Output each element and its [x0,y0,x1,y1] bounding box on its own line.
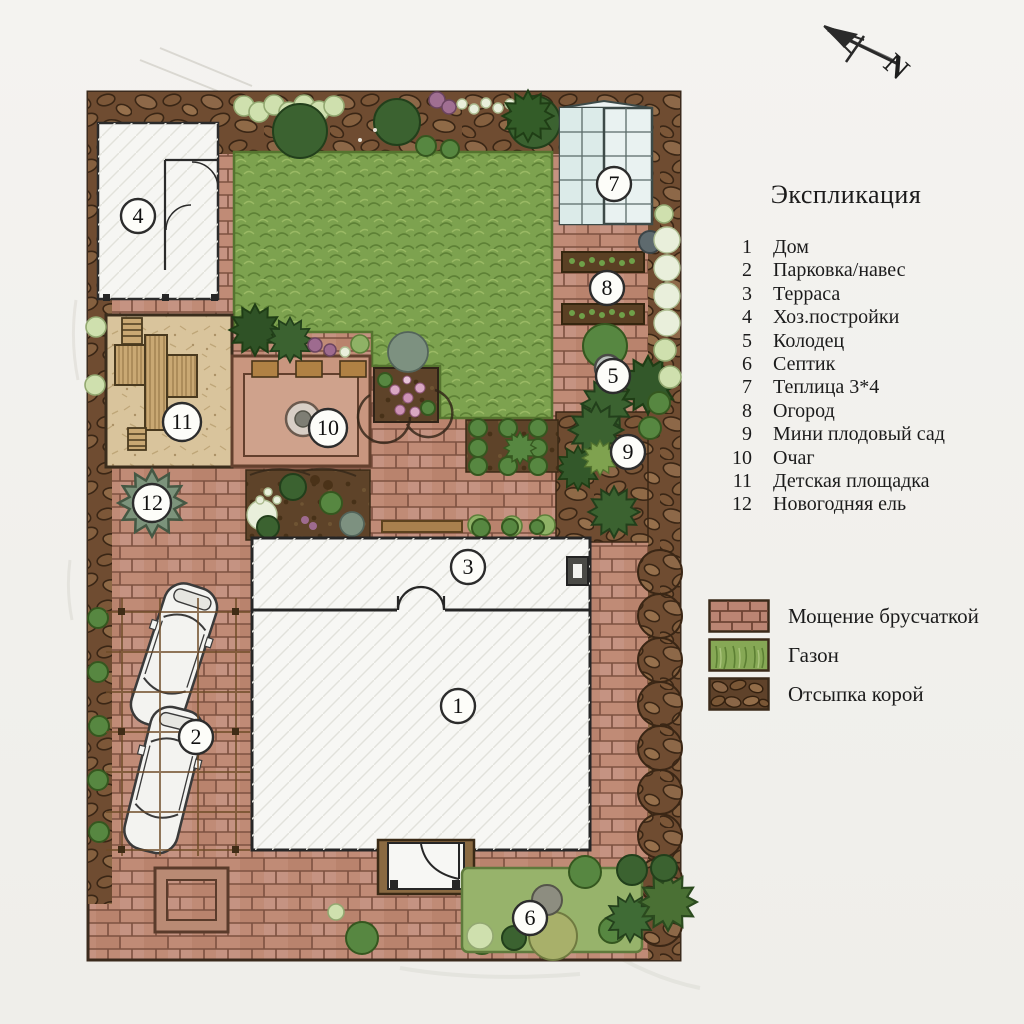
house [252,538,590,850]
legend-item-number: 8 [726,400,752,423]
legend-item-label: Огород [773,400,835,423]
svg-text:10: 10 [317,415,339,440]
legend-item-number: 11 [726,470,752,493]
marker-4-outbuilding: 4 [121,199,155,233]
legend-item-label: Терраса [773,283,840,306]
marker-6-septic: 6 [513,901,547,935]
legend-item: 12Новогодняя ель [726,493,1002,516]
svg-text:6: 6 [525,905,536,930]
legend-item-number: 2 [726,259,752,282]
material-label: Мощение брусчаткой [788,604,979,629]
legend-item: 2Парковка/навес [726,259,1002,282]
marker-11-playground: 11 [163,403,201,441]
playground [106,315,232,467]
legend-title: Экспликация [726,180,966,210]
lawn-swatch [708,638,770,672]
legend-item-number: 7 [726,376,752,399]
garden-bench [382,521,462,532]
marker-5-well: 5 [596,359,630,393]
legend-item-label: Колодец [773,330,844,353]
legend-item-label: Парковка/навес [773,259,905,282]
greenhouse [560,101,652,224]
brick-paving-swatch [708,599,770,633]
legend-item-label: Дом [773,236,809,259]
legend-item-label: Новогодняя ель [773,493,906,516]
north-arrow: N [824,26,916,86]
legend-item-label: Септик [773,353,835,376]
legend-item: 6Септик [726,353,1002,376]
material-item-bark: Отсыпка корой [708,677,979,711]
legend-item: 11Детская площадка [726,470,1002,493]
north-label: N [877,47,915,86]
bench [252,361,278,377]
svg-text:12: 12 [141,490,163,515]
legend-item-label: Мини плодовый сад [773,423,945,446]
legend-item-number: 10 [726,447,752,470]
legend-item-number: 1 [726,236,752,259]
marker-9-orchard: 9 [611,435,645,469]
svg-text:11: 11 [171,409,192,434]
paving-inset-square [155,868,228,932]
legend-item: 7Теплица 3*4 [726,376,1002,399]
bench [340,361,366,377]
tree-grey-green [388,332,428,372]
svg-text:5: 5 [608,363,619,388]
landscape-plan-page: 1 2 3 4 5 6 7 8 9 10 11 12 N Экспликация… [0,0,1024,1024]
svg-text:4: 4 [133,203,144,228]
legend-item-number: 3 [726,283,752,306]
marker-8-vegetable-garden: 8 [590,271,624,305]
legend-list: 1Дом 2Парковка/навес 3Терраса 4Хоз.постр… [726,236,1002,517]
material-item-lawn: Газон [708,638,979,672]
marker-10-fire-pit: 10 [309,409,347,447]
marker-7-greenhouse: 7 [597,167,631,201]
play-platform [167,355,197,397]
marker-2-parking: 2 [179,720,213,754]
svg-text:9: 9 [623,439,634,464]
legend-item: 4Хоз.постройки [726,306,1002,329]
legend-item: 3Терраса [726,283,1002,306]
marker-12-spruce: 12 [133,484,171,522]
svg-text:2: 2 [191,724,202,749]
svg-text:3: 3 [463,554,474,579]
material-label: Отсыпка корой [788,682,924,707]
legend-item: 10Очаг [726,447,1002,470]
outbuilding [98,123,218,301]
material-item-paving: Мощение брусчаткой [708,599,979,633]
materials-legend: Мощение брусчаткой Газон Отсыпка корой [708,599,979,716]
svg-text:8: 8 [602,275,613,300]
bark-mulch-swatch [708,677,770,711]
legend-item: 9Мини плодовый сад [726,423,1002,446]
legend-item-label: Хоз.постройки [773,306,899,329]
legend-item-number: 6 [726,353,752,376]
legend-item: 1Дом [726,236,1002,259]
legend-item-number: 9 [726,423,752,446]
legend-item: 8Огород [726,400,1002,423]
entry-porch [378,840,474,894]
legend-item-label: Детская площадка [773,470,930,493]
marker-3-terrace: 3 [451,550,485,584]
legend-item-label: Очаг [773,447,815,470]
legend-item-number: 4 [726,306,752,329]
legend-item-label: Теплица 3*4 [773,376,879,399]
material-label: Газон [788,643,839,668]
svg-text:1: 1 [453,693,464,718]
tree [273,104,327,158]
svg-text:7: 7 [609,171,620,196]
explication-legend: Экспликация 1Дом 2Парковка/навес 3Террас… [726,180,1002,517]
legend-item-number: 12 [726,493,752,516]
fire-pit-patio [232,356,370,466]
legend-item: 5Колодец [726,330,1002,353]
marker-1-house: 1 [441,689,475,723]
bench [296,361,322,377]
legend-item-number: 5 [726,330,752,353]
